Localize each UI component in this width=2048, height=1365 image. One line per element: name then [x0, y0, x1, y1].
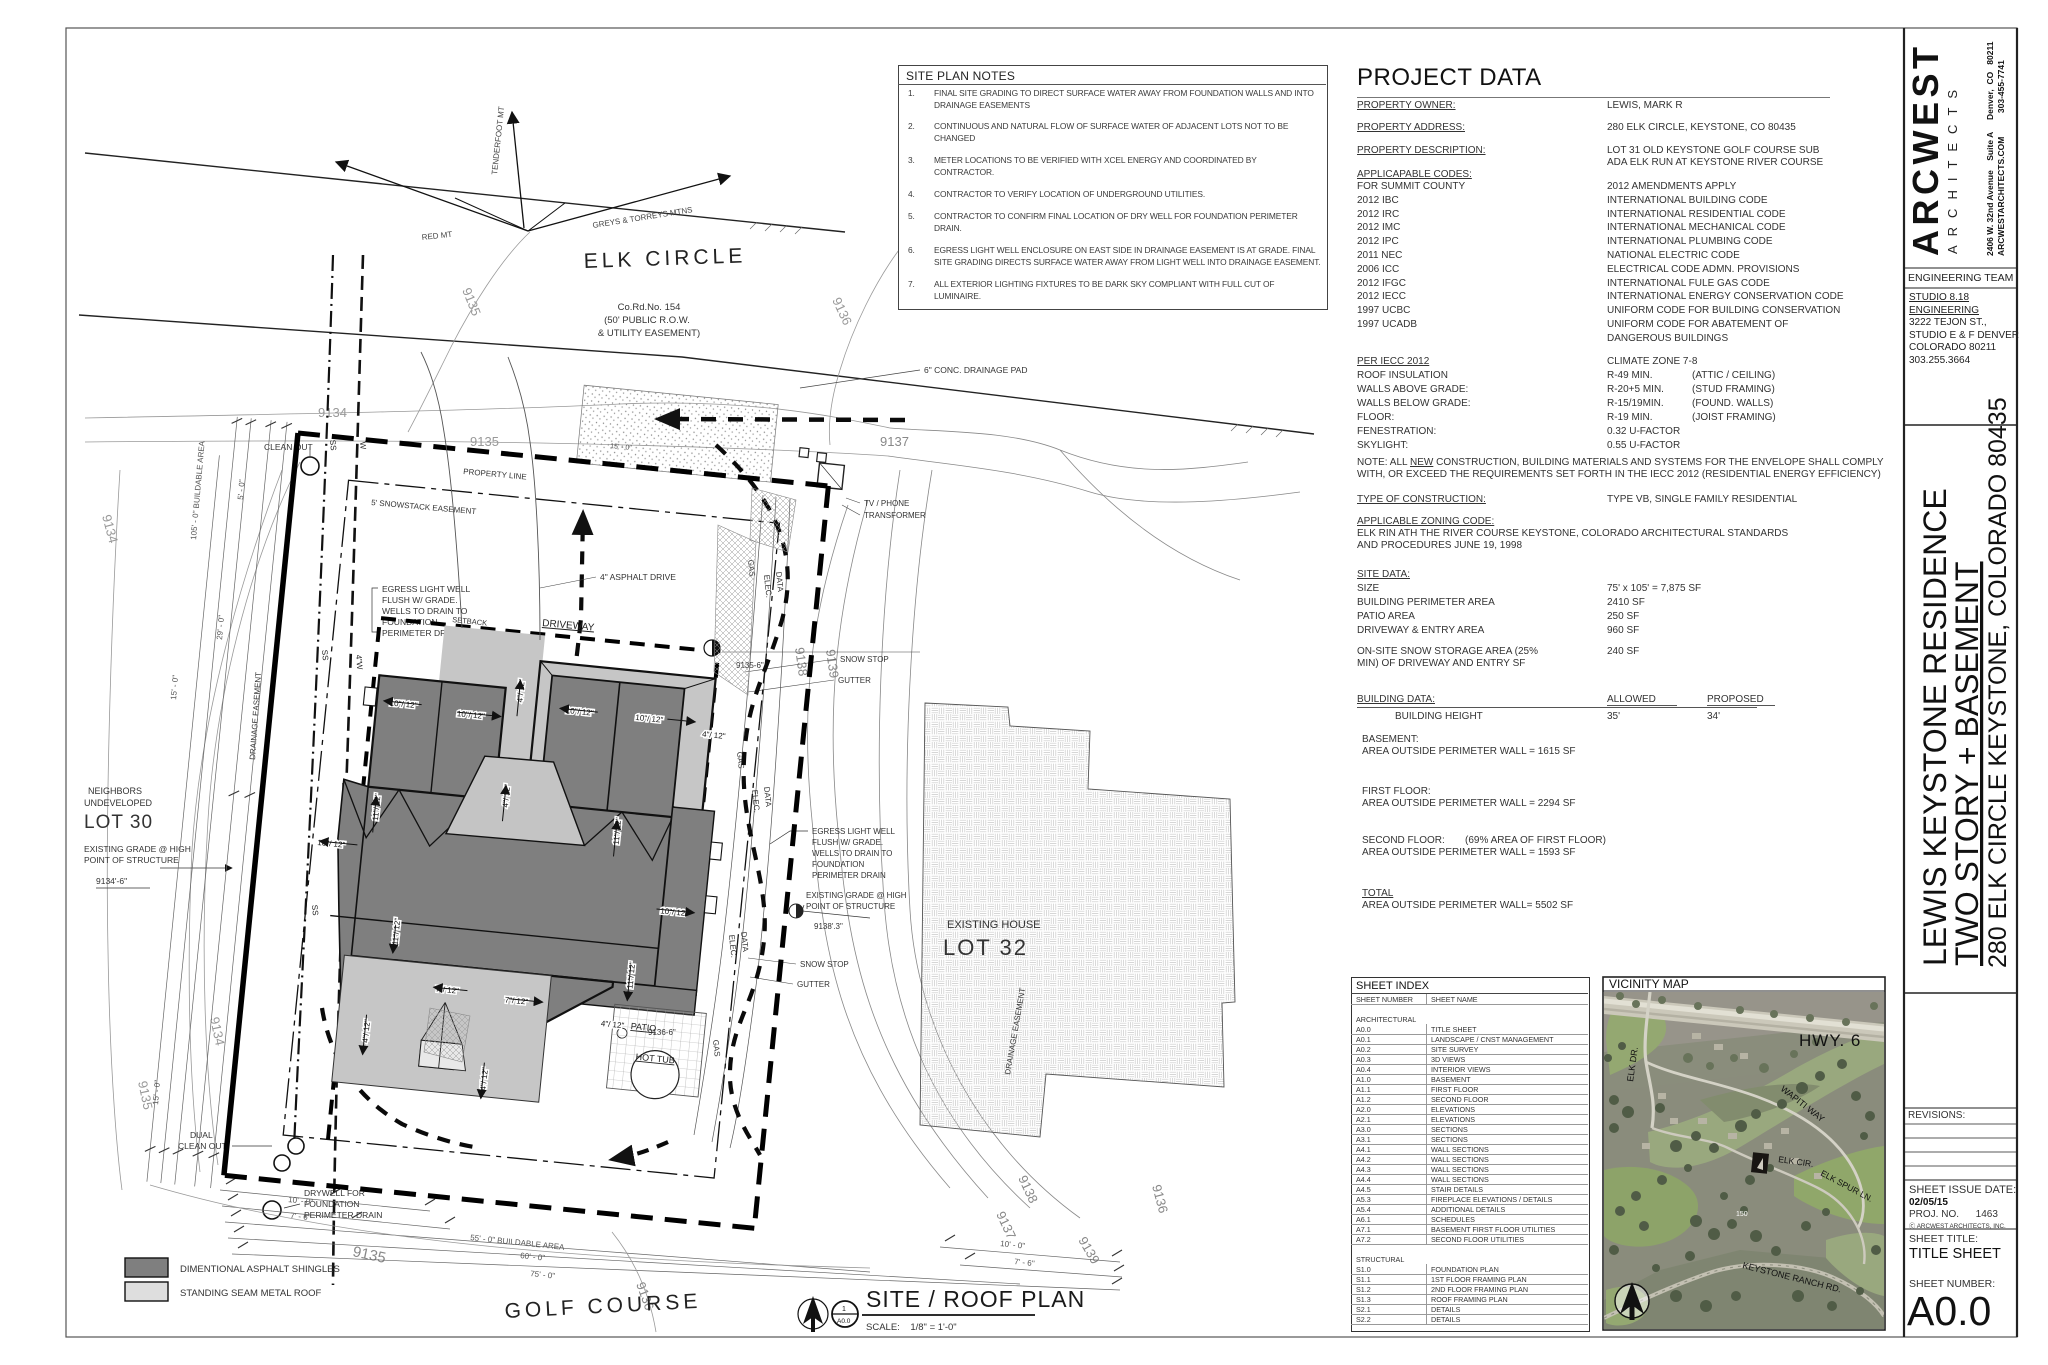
- svg-text:TRANSFORMER: TRANSFORMER: [864, 511, 926, 520]
- svg-text:TV / PHONE: TV / PHONE: [864, 499, 909, 508]
- svg-text:DRYWELL FOR: DRYWELL FOR: [304, 1188, 365, 1198]
- svg-text:105' - 0" BUILDABLE AREA: 105' - 0" BUILDABLE AREA: [189, 440, 207, 540]
- svg-text:9136: 9136: [1149, 1183, 1171, 1215]
- svg-text:60' - 0": 60' - 0": [520, 1251, 546, 1263]
- svg-text:ELK CIRCLE: ELK CIRCLE: [583, 244, 746, 273]
- svg-text:9134: 9134: [318, 405, 347, 420]
- svg-text:9136: 9136: [829, 295, 855, 328]
- svg-text:GAS: GAS: [711, 1039, 722, 1057]
- svg-text:9137: 9137: [880, 434, 909, 449]
- svg-text:SS: SS: [320, 649, 330, 660]
- svg-text:5' SNOWSTACK EASEMENT: 5' SNOWSTACK EASEMENT: [371, 498, 477, 516]
- svg-text:GUTTER: GUTTER: [797, 980, 830, 989]
- svg-text:ELEC.: ELEC.: [762, 574, 773, 598]
- svg-text:TENDERFOOT MT: TENDERFOOT MT: [490, 106, 506, 175]
- svg-text:LOT 32: LOT 32: [943, 935, 1028, 960]
- svg-text:NEIGHBORS: NEIGHBORS: [88, 786, 142, 796]
- svg-text:A0.0: A0.0: [837, 1318, 851, 1325]
- svg-text:LEWIS KEYSTONE RESIDENCE: LEWIS KEYSTONE RESIDENCE: [1917, 488, 1953, 966]
- svg-text:HWY. 6: HWY. 6: [1799, 1031, 1861, 1050]
- svg-text:9138'.3": 9138'.3": [814, 922, 843, 931]
- svg-text:SNOW STOP: SNOW STOP: [840, 655, 889, 664]
- svg-text:DRIVEWAY: DRIVEWAY: [542, 618, 595, 634]
- svg-text:9136-6": 9136-6": [648, 1028, 676, 1037]
- svg-text:9134'-6": 9134'-6": [96, 876, 127, 886]
- svg-text:SS: SS: [310, 904, 320, 915]
- svg-text:2406 W. 32nd Avenue Suite A: 2406 W. 32nd Avenue Suite A Denver, CO 8…: [1985, 41, 1995, 256]
- svg-text:6" CONC. DRAINAGE PAD: 6" CONC. DRAINAGE PAD: [924, 365, 1027, 375]
- svg-text:POINT OF STRUCTURE: POINT OF STRUCTURE: [806, 902, 895, 911]
- svg-text:SCALE: 1/8" = 1'-0": SCALE: 1/8" = 1'-0": [866, 1322, 957, 1333]
- svg-text:VICINITY MAP: VICINITY MAP: [1609, 977, 1689, 991]
- svg-text:9139: 9139: [1075, 1234, 1102, 1267]
- svg-text:SNOW STOP: SNOW STOP: [800, 960, 849, 969]
- svg-text:7' - 6": 7' - 6": [1014, 1257, 1035, 1268]
- svg-text:GOLF COURSE: GOLF COURSE: [504, 1290, 702, 1323]
- svg-text:DATA: DATA: [774, 571, 785, 593]
- svg-text:1: 1: [842, 1306, 846, 1313]
- svg-text:10' - 0": 10' - 0": [288, 1195, 314, 1207]
- svg-text:150: 150: [1736, 1211, 1748, 1218]
- svg-text:EXISTING HOUSE: EXISTING HOUSE: [947, 919, 1041, 931]
- svg-text:RED MT: RED MT: [421, 230, 453, 242]
- svg-text:FLUSH W/ GRADE.: FLUSH W/ GRADE.: [382, 595, 458, 605]
- svg-text:9135: 9135: [470, 434, 499, 449]
- svg-text:POINT OF STRUCTURE: POINT OF STRUCTURE: [84, 855, 179, 865]
- svg-text:UNDEVELOPED: UNDEVELOPED: [84, 798, 153, 808]
- svg-text:EXISTING GRADE @ HIGH: EXISTING GRADE @ HIGH: [84, 844, 191, 854]
- svg-text:Co.Rd.No. 154: Co.Rd.No. 154: [618, 302, 681, 313]
- svg-text:W: W: [358, 441, 368, 450]
- svg-text:9134: 9134: [99, 513, 121, 545]
- svg-text:DIMENTIONAL ASPHALT SHINGLES: DIMENTIONAL ASPHALT SHINGLES: [180, 1264, 340, 1275]
- svg-text:WELLS TO DRAIN TO: WELLS TO DRAIN TO: [812, 849, 892, 858]
- svg-text:9135: 9135: [459, 286, 484, 318]
- svg-text:LOT 30: LOT 30: [84, 812, 153, 833]
- svg-text:4"W: 4"W: [354, 654, 364, 670]
- svg-text:4" ASPHALT DRIVE: 4" ASPHALT DRIVE: [600, 572, 676, 582]
- svg-text:GUTTER: GUTTER: [838, 676, 871, 685]
- svg-text:ARCWESTARCHITECTS.COM: ARCWESTARCHITECTS.COM 303-455-7741: [1996, 60, 2006, 256]
- svg-text:280 ELK CIRCLE KEYSTONE, COLOR: 280 ELK CIRCLE KEYSTONE, COLORADO 80435: [1984, 397, 2012, 968]
- svg-text:15' - 0": 15' - 0": [169, 675, 180, 701]
- svg-text:DUAL: DUAL: [190, 1130, 213, 1140]
- svg-text:EGRESS LIGHT WELL: EGRESS LIGHT WELL: [812, 827, 896, 836]
- svg-text:75' - 0": 75' - 0": [530, 1269, 556, 1281]
- svg-text:PROPERTY LINE: PROPERTY LINE: [463, 467, 527, 482]
- svg-text:SITE / ROOF PLAN: SITE / ROOF PLAN: [866, 1286, 1085, 1312]
- svg-text:ARCWEST: ARCWEST: [1905, 43, 1946, 257]
- svg-text:9138: 9138: [1015, 1173, 1041, 1206]
- svg-text:DATA: DATA: [762, 786, 773, 808]
- svg-text:DATA: DATA: [739, 931, 750, 953]
- svg-text:SS: SS: [328, 439, 338, 450]
- svg-text:CLEAN OUT: CLEAN OUT: [178, 1141, 227, 1151]
- svg-text:EGRESS LIGHT WELL: EGRESS LIGHT WELL: [382, 584, 470, 594]
- svg-text:29' - 0": 29' - 0": [215, 615, 226, 641]
- svg-text:9137: 9137: [993, 1209, 1019, 1242]
- svg-text:(50' PUBLIC R.O.W.: (50' PUBLIC R.O.W.: [604, 315, 690, 326]
- svg-text:CLEAN OUT: CLEAN OUT: [264, 442, 313, 452]
- svg-text:5' - 0": 5' - 0": [236, 479, 247, 500]
- svg-text:FLUSH W/ GRADE.: FLUSH W/ GRADE.: [812, 838, 883, 847]
- svg-text:EXISTING GRADE @ HIGH: EXISTING GRADE @ HIGH: [806, 891, 907, 900]
- svg-text:ARCHITECTS: ARCHITECTS: [1945, 81, 1960, 254]
- svg-text:TWO STORY + BASEMENT: TWO STORY + BASEMENT: [1949, 561, 1985, 966]
- svg-text:& UTILITY EASEMENT): & UTILITY EASEMENT): [598, 328, 700, 339]
- svg-text:PERIMETER DRAIN: PERIMETER DRAIN: [812, 871, 886, 880]
- svg-text:15' - 0": 15' - 0": [151, 1080, 162, 1106]
- svg-text:10' - 0": 10' - 0": [1000, 1239, 1026, 1251]
- svg-text:4"/ 12": 4"/ 12": [600, 1019, 624, 1030]
- svg-text:STANDING SEAM METAL ROOF: STANDING SEAM METAL ROOF: [180, 1288, 321, 1299]
- svg-text:FOUNDATION: FOUNDATION: [812, 860, 865, 869]
